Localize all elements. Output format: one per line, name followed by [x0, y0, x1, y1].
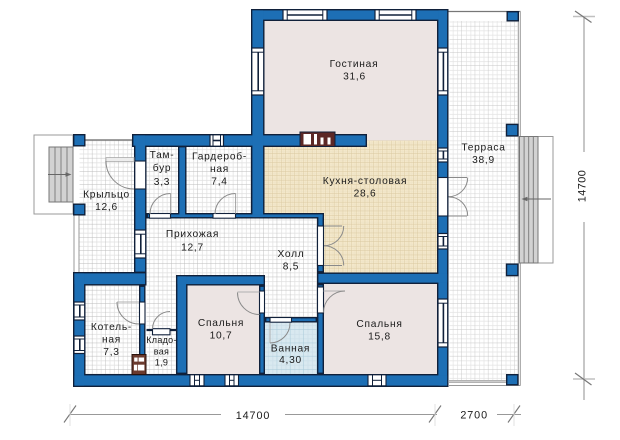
svg-text:ная: ная	[210, 164, 229, 175]
svg-text:Кухня-столовая: Кухня-столовая	[323, 176, 407, 187]
svg-text:Там-: Там-	[150, 150, 175, 161]
svg-text:Терраса: Терраса	[461, 143, 505, 154]
svg-text:2700: 2700	[460, 410, 488, 422]
svg-text:12,7: 12,7	[181, 243, 204, 254]
svg-text:4,30: 4,30	[279, 355, 302, 366]
svg-text:14700: 14700	[577, 170, 589, 203]
svg-text:14700: 14700	[236, 410, 271, 422]
svg-text:Кладо-: Кладо-	[146, 335, 177, 345]
svg-text:бур: бур	[153, 162, 172, 174]
svg-text:10,7: 10,7	[210, 330, 233, 341]
svg-text:Крыльцо: Крыльцо	[83, 189, 130, 200]
svg-text:3,3: 3,3	[154, 177, 170, 188]
svg-text:Котель-: Котель-	[91, 322, 132, 333]
svg-text:вая: вая	[154, 347, 169, 357]
svg-text:Прихожая: Прихожая	[166, 229, 219, 240]
svg-text:Гардероб-: Гардероб-	[192, 151, 247, 163]
svg-text:8,5: 8,5	[283, 262, 299, 273]
svg-text:Спальня: Спальня	[198, 318, 244, 329]
svg-text:Ванная: Ванная	[271, 344, 310, 355]
svg-text:12,6: 12,6	[95, 202, 118, 213]
svg-text:31,6: 31,6	[343, 72, 366, 83]
svg-text:15,8: 15,8	[368, 332, 391, 343]
svg-text:Гостиная: Гостиная	[330, 59, 379, 70]
svg-text:28,6: 28,6	[354, 189, 377, 200]
svg-text:1,9: 1,9	[155, 358, 168, 368]
svg-text:38,9: 38,9	[472, 155, 495, 166]
svg-text:ная: ная	[102, 334, 121, 345]
svg-text:Холл: Холл	[277, 249, 304, 260]
svg-text:7,4: 7,4	[211, 177, 227, 188]
svg-text:7,3: 7,3	[103, 347, 119, 358]
svg-text:Спальня: Спальня	[356, 319, 402, 330]
